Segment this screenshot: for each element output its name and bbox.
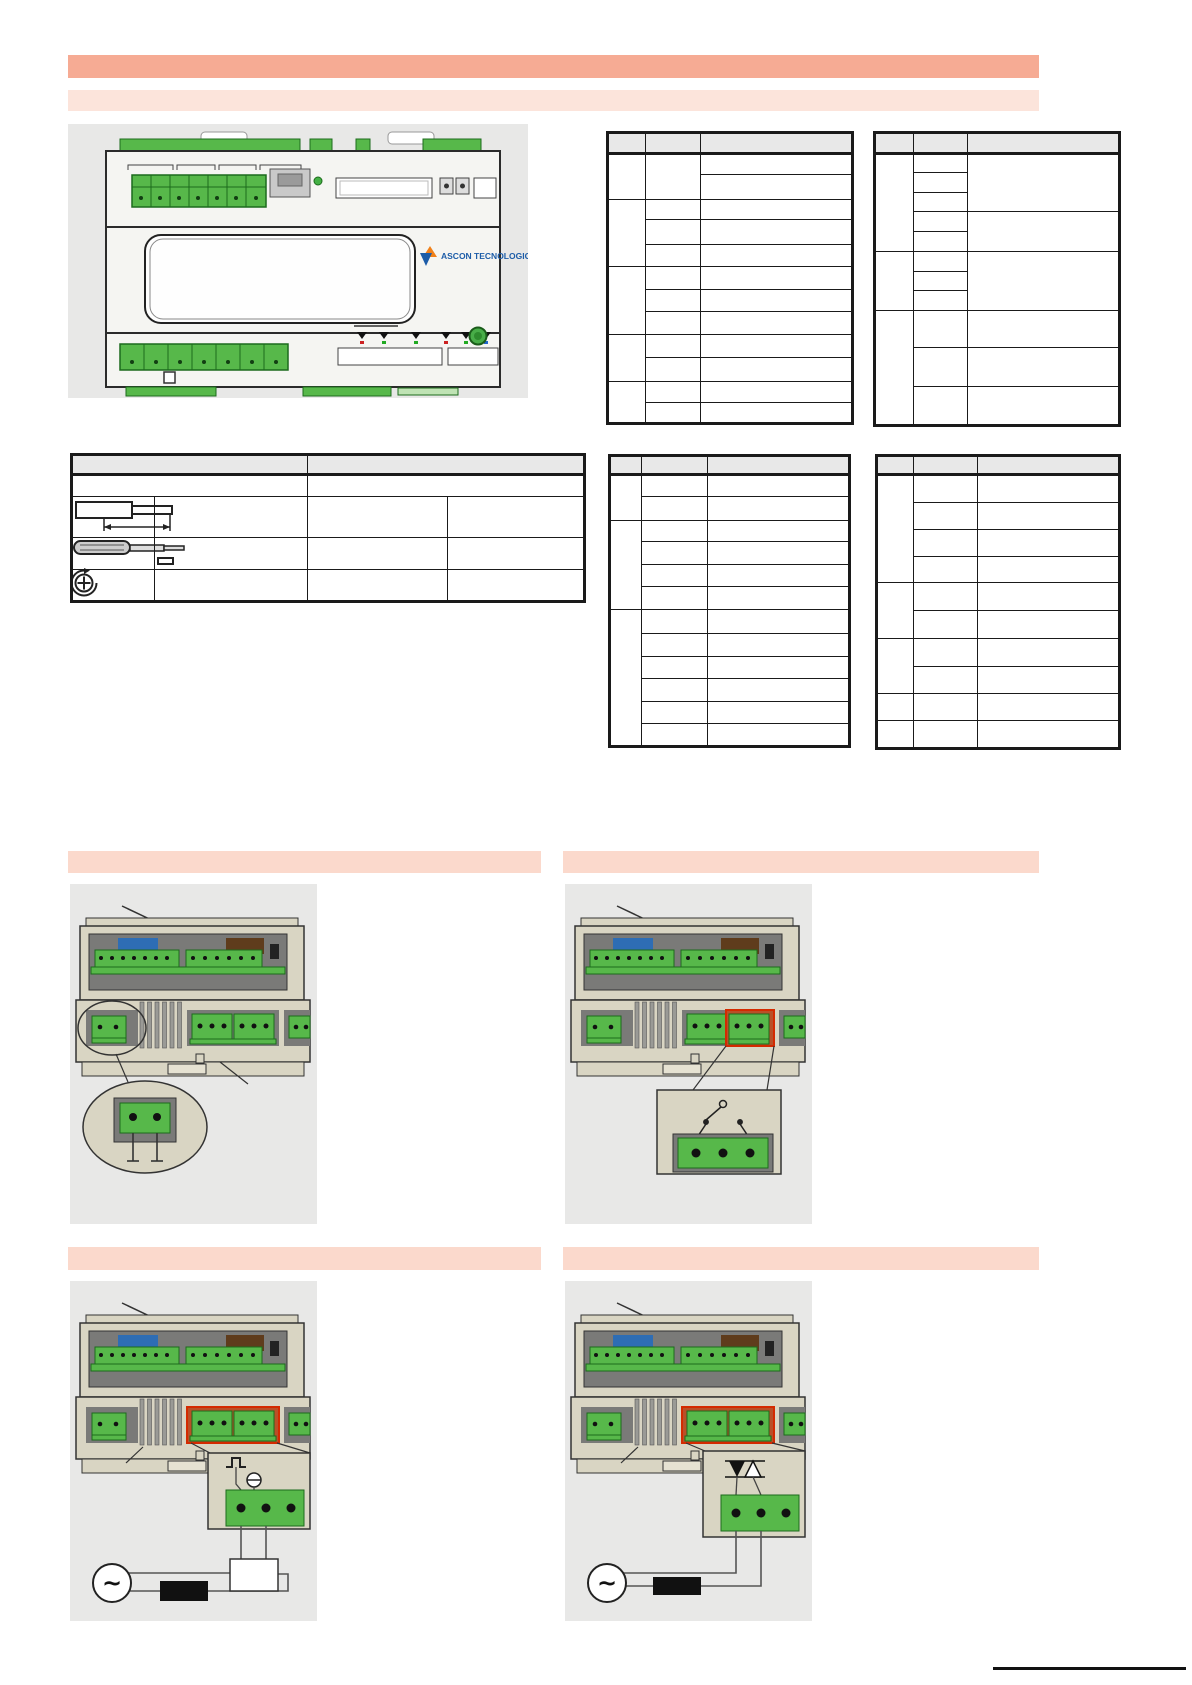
terminal-table-mid-left-cell bbox=[708, 587, 850, 610]
terminal-table-top-left-cell bbox=[701, 290, 853, 312]
terminal-table-mid-right bbox=[875, 454, 1121, 750]
terminal-table-top-left-cell bbox=[646, 312, 701, 335]
terminal-table-mid-left-cell bbox=[708, 702, 850, 724]
terminal-table-top-left-cell bbox=[646, 200, 701, 220]
connection-spec-table-cell bbox=[155, 570, 308, 602]
terminal-table-mid-right-cell bbox=[914, 456, 978, 475]
terminal-table-top-left-cell bbox=[701, 358, 853, 382]
terminal-table-top-right-cell bbox=[875, 252, 914, 311]
status-led-green bbox=[314, 177, 322, 185]
terminal-table-mid-right-cell bbox=[914, 694, 978, 721]
load-symbol bbox=[653, 1577, 701, 1595]
figure-panel-triac-output: ~ bbox=[565, 1281, 812, 1621]
brand-logo-text: ASCON TECNOLOGIC bbox=[441, 251, 528, 261]
terminal-table-top-right-cell bbox=[914, 252, 968, 272]
terminal-table-mid-left-cell bbox=[708, 521, 850, 542]
jumper-pin bbox=[444, 184, 449, 189]
terminal-table-top-left-cell bbox=[646, 245, 701, 267]
title-banner bbox=[68, 55, 1039, 78]
terminal-table-top-left-cell bbox=[646, 133, 701, 154]
terminal-table-top-right-cell bbox=[875, 154, 914, 252]
terminal-table-top-left-cell bbox=[608, 154, 646, 200]
connection-spec-table-cell bbox=[308, 538, 448, 570]
section-banner-triac-output bbox=[563, 1247, 1039, 1270]
relay-output-wiring-figure bbox=[565, 884, 812, 1224]
connection-spec-table-cell bbox=[308, 475, 585, 497]
connection-spec-table-cell bbox=[448, 570, 585, 602]
terminal-table-mid-left-cell bbox=[642, 565, 708, 587]
terminal-table-mid-left-cell bbox=[708, 565, 850, 587]
terminal-table-top-left-cell bbox=[701, 220, 853, 245]
address-switch bbox=[164, 372, 175, 383]
terminal-table-mid-left-cell bbox=[610, 610, 642, 747]
terminal-table-top-left-cell bbox=[608, 267, 646, 335]
terminal-table-mid-left-cell bbox=[642, 610, 708, 634]
terminal-table-mid-left-cell bbox=[708, 679, 850, 702]
ac-tilde-glyph: ~ bbox=[102, 1569, 122, 1597]
power-supply-wiring-figure bbox=[70, 884, 317, 1224]
connection-spec-table-cell bbox=[308, 455, 585, 475]
terminal-table-mid-left-cell bbox=[642, 702, 708, 724]
connection-spec-table-cell bbox=[448, 497, 585, 538]
terminal-table-mid-left bbox=[608, 454, 851, 748]
terminal-table-top-left-cell bbox=[608, 133, 646, 154]
display-window bbox=[145, 235, 415, 323]
terminal-table-mid-left-cell bbox=[708, 542, 850, 565]
terminal-table-top-left-cell bbox=[608, 200, 646, 267]
terminal-table-mid-right-cell bbox=[877, 475, 914, 583]
led-green bbox=[414, 341, 418, 344]
terminal-table-top-left-cell bbox=[701, 312, 853, 335]
ssr-module-box bbox=[230, 1559, 278, 1591]
terminal-table-mid-right-cell bbox=[914, 475, 978, 503]
terminal-table-top-left-cell bbox=[701, 133, 853, 154]
figure-panel-relay-output bbox=[565, 884, 812, 1224]
terminal-table-top-right-cell bbox=[968, 311, 1120, 348]
terminal-table-mid-right-cell bbox=[914, 530, 978, 557]
terminal-table-top-left-cell bbox=[646, 267, 701, 290]
option-slot bbox=[474, 178, 496, 198]
terminal-table-mid-right-cell bbox=[877, 721, 914, 749]
section-banner-power-supply bbox=[68, 851, 541, 873]
section-banner-relay-output bbox=[563, 851, 1039, 873]
terminal-table-top-left-cell bbox=[646, 290, 701, 312]
terminal-table-mid-left-cell bbox=[642, 679, 708, 702]
led-red bbox=[360, 341, 364, 344]
terminal-table-mid-left-cell bbox=[708, 475, 850, 497]
terminal-table-top-right-cell bbox=[914, 291, 968, 311]
manual-page: ASCON TECNOLOGIC bbox=[0, 0, 1192, 1685]
figure-panel-power-supply bbox=[70, 884, 317, 1224]
terminal-table-top-left-cell bbox=[701, 403, 853, 424]
terminal-table-mid-left-cell bbox=[610, 456, 642, 475]
terminal-table-top-right-cell bbox=[875, 311, 914, 426]
terminal-table-top-right-cell bbox=[968, 252, 1120, 311]
footer-rule bbox=[993, 1667, 1186, 1670]
terminal-table-top-left-cell bbox=[646, 382, 701, 403]
led-red bbox=[444, 341, 448, 344]
terminal-table-mid-right-cell bbox=[978, 667, 1120, 694]
power-button-inner bbox=[474, 332, 482, 340]
terminal-table-top-right-cell bbox=[914, 154, 968, 173]
wire-strip-length-icon bbox=[74, 500, 196, 534]
connection-spec-table-cell bbox=[308, 570, 448, 602]
terminal-table-top-right-cell bbox=[914, 173, 968, 193]
terminal-table-top-right-cell bbox=[968, 387, 1120, 426]
terminal-table-mid-right-cell bbox=[914, 503, 978, 530]
led-green bbox=[464, 341, 468, 344]
terminal-table-mid-right-cell bbox=[978, 557, 1120, 583]
upper-terminal-block bbox=[132, 175, 266, 207]
led-green bbox=[382, 341, 386, 344]
screwdriver-icon bbox=[72, 538, 198, 566]
device-front-panel: ASCON TECNOLOGIC bbox=[68, 124, 528, 398]
terminal-table-top-right-cell bbox=[968, 133, 1120, 154]
terminal-table-mid-left-cell bbox=[642, 657, 708, 679]
terminal-table-top-left-cell bbox=[701, 154, 853, 175]
terminal-table-mid-left-cell bbox=[642, 497, 708, 521]
terminal-table-mid-right-cell bbox=[978, 611, 1120, 639]
terminal-table-mid-left-cell bbox=[642, 542, 708, 565]
subtitle-banner bbox=[68, 90, 1039, 111]
terminal-table-mid-right-cell bbox=[914, 721, 978, 749]
terminal-table-mid-right-cell bbox=[914, 667, 978, 694]
terminal-table-top-left-cell bbox=[646, 154, 701, 200]
terminal-table-mid-right-cell bbox=[914, 557, 978, 583]
terminal-table-top-left-cell bbox=[646, 220, 701, 245]
ssr-output-wiring-figure: ~ bbox=[70, 1281, 317, 1621]
terminal-table-top-right-cell bbox=[968, 348, 1120, 387]
terminal-table-mid-left-cell bbox=[610, 521, 642, 610]
terminal-table-top-right-cell bbox=[914, 348, 968, 387]
terminal-table-mid-left-cell bbox=[610, 475, 642, 521]
terminal-table-mid-left-cell bbox=[708, 657, 850, 679]
terminal-table-mid-left-cell bbox=[708, 456, 850, 475]
terminal-table-top-left-cell bbox=[646, 358, 701, 382]
load-symbol bbox=[160, 1581, 208, 1601]
terminal-table-top-right-cell bbox=[914, 193, 968, 212]
terminal-table-top-left-cell bbox=[646, 335, 701, 358]
terminal-table-mid-left-cell bbox=[708, 610, 850, 634]
terminal-table-top-left-cell bbox=[646, 403, 701, 424]
terminal-table-top-left-cell bbox=[608, 335, 646, 382]
terminal-table-top-right-cell bbox=[968, 154, 1120, 212]
device-front-illustration: ASCON TECNOLOGIC bbox=[68, 124, 528, 398]
ac-tilde-glyph: ~ bbox=[597, 1569, 617, 1597]
terminal-table-mid-right-cell bbox=[978, 530, 1120, 557]
terminal-table-mid-right-cell bbox=[978, 503, 1120, 530]
terminal-table-mid-right-cell bbox=[914, 583, 978, 611]
torque-screw-icon bbox=[70, 568, 102, 598]
terminal-table-top-left-cell bbox=[701, 267, 853, 290]
terminal-table-mid-right-cell bbox=[978, 639, 1120, 667]
terminal-table-mid-right-cell bbox=[877, 456, 914, 475]
terminal-table-mid-left-cell bbox=[642, 634, 708, 657]
terminal-table-mid-right-cell bbox=[914, 639, 978, 667]
terminal-table-top-left-cell bbox=[701, 200, 853, 220]
terminal-table-top-left-cell bbox=[701, 382, 853, 403]
terminal-table-mid-left-cell bbox=[708, 634, 850, 657]
terminal-table-top-right-cell bbox=[914, 212, 968, 232]
terminal-table-mid-right-cell bbox=[978, 583, 1120, 611]
terminal-table-top-right bbox=[873, 131, 1121, 427]
comm-connector-slot bbox=[278, 174, 302, 186]
connection-spec-table-cell bbox=[308, 497, 448, 538]
terminal-table-top-right-cell bbox=[914, 387, 968, 426]
connection-spec-table-cell bbox=[448, 538, 585, 570]
terminal-table-top-right-cell bbox=[914, 311, 968, 348]
terminal-table-top-right-cell bbox=[914, 133, 968, 154]
terminal-table-mid-left-cell bbox=[708, 497, 850, 521]
terminal-table-top-left-cell bbox=[701, 335, 853, 358]
lower-terminal-block bbox=[120, 344, 288, 370]
terminal-table-top-right-cell bbox=[968, 212, 1120, 252]
triac-output-wiring-figure: ~ bbox=[565, 1281, 812, 1621]
terminal-table-top-right-cell bbox=[914, 232, 968, 252]
terminal-table-top-left bbox=[606, 131, 854, 425]
terminal-table-mid-right-cell bbox=[978, 721, 1120, 749]
figure-panel-ssr-output: ~ bbox=[70, 1281, 317, 1621]
terminal-table-mid-left-cell bbox=[642, 724, 708, 747]
connection-spec-table-cell bbox=[72, 475, 308, 497]
terminal-table-mid-left-cell bbox=[642, 521, 708, 542]
terminal-table-mid-right-cell bbox=[978, 694, 1120, 721]
connection-spec-table-cell bbox=[72, 455, 308, 475]
terminal-table-mid-left-cell bbox=[642, 587, 708, 610]
terminal-table-mid-right-cell bbox=[877, 694, 914, 721]
terminal-table-top-left-cell bbox=[608, 382, 646, 424]
terminal-table-mid-left-cell bbox=[642, 475, 708, 497]
jumper-pin bbox=[460, 184, 465, 189]
power-terminal-block bbox=[120, 1103, 170, 1133]
terminal-table-mid-right-cell bbox=[877, 639, 914, 694]
terminal-table-mid-right-cell bbox=[978, 456, 1120, 475]
terminal-table-mid-left-cell bbox=[708, 724, 850, 747]
terminal-table-mid-right-cell bbox=[914, 611, 978, 639]
terminal-table-mid-right-cell bbox=[978, 475, 1120, 503]
terminal-table-top-right-cell bbox=[914, 272, 968, 291]
terminal-table-mid-right-cell bbox=[877, 583, 914, 639]
terminal-table-top-left-cell bbox=[701, 175, 853, 200]
terminal-table-mid-left-cell bbox=[642, 456, 708, 475]
terminal-table-top-right-cell bbox=[875, 133, 914, 154]
bottom-terminal-strips bbox=[126, 387, 458, 396]
section-banner-ssr-output bbox=[68, 1247, 541, 1270]
terminal-table-top-left-cell bbox=[701, 245, 853, 267]
